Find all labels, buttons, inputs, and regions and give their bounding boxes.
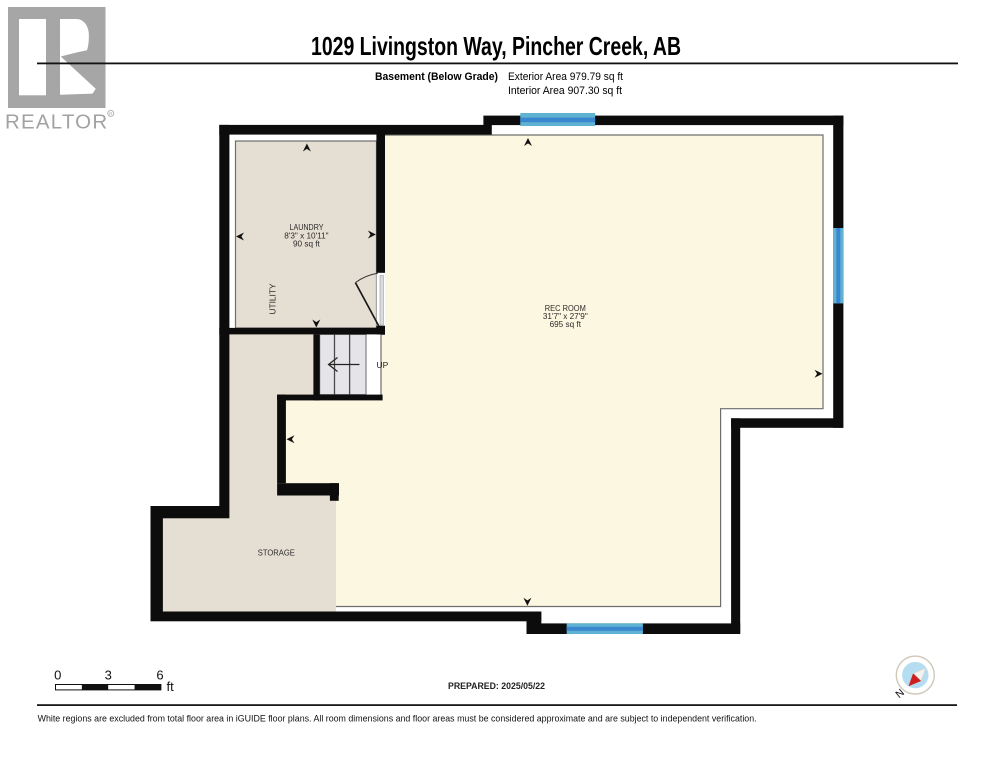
svg-text:Basement (Below Grade): Basement (Below Grade) xyxy=(375,71,498,83)
svg-text:0: 0 xyxy=(54,668,61,683)
svg-text:6: 6 xyxy=(156,668,163,683)
svg-text:Exterior Area 979.79 sq ft: Exterior Area 979.79 sq ft xyxy=(508,71,624,83)
svg-text:3: 3 xyxy=(105,668,112,683)
svg-text:695 sq ft: 695 sq ft xyxy=(550,320,582,329)
svg-text:1029 Livingston Way, Pincher C: 1029 Livingston Way, Pincher Creek, AB xyxy=(311,31,681,61)
svg-text:UP: UP xyxy=(377,360,389,370)
svg-text:R: R xyxy=(109,112,113,118)
svg-text:REALTOR: REALTOR xyxy=(5,111,108,134)
svg-text:ft: ft xyxy=(167,679,175,694)
svg-text:White regions are excluded fro: White regions are excluded from total fl… xyxy=(38,714,757,725)
svg-text:90 sq ft: 90 sq ft xyxy=(293,240,321,249)
svg-text:Interior Area 907.30 sq ft: Interior Area 907.30 sq ft xyxy=(508,85,623,97)
svg-text:STORAGE: STORAGE xyxy=(258,549,295,558)
svg-text:UTILITY: UTILITY xyxy=(269,283,278,315)
svg-text:PREPARED: 2025/05/22: PREPARED: 2025/05/22 xyxy=(448,681,545,692)
